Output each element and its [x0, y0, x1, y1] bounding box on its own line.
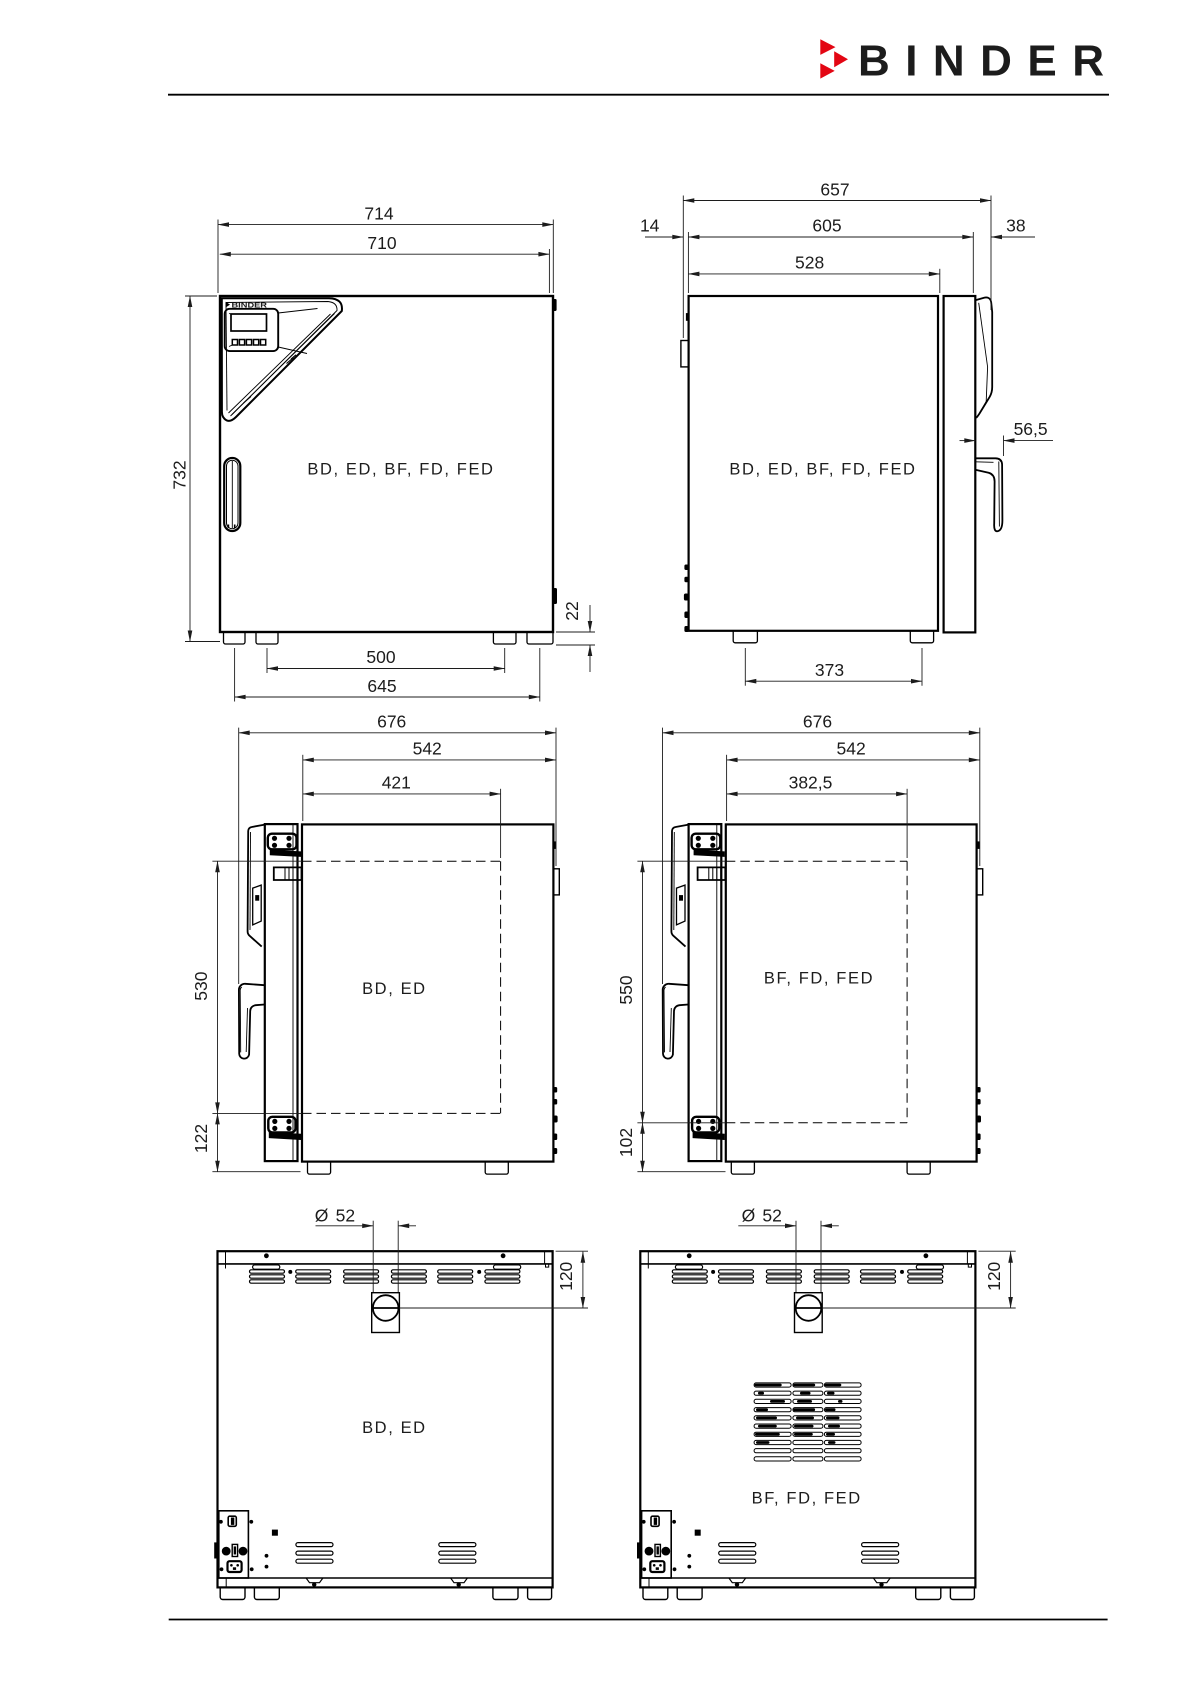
svg-text:500: 500 — [366, 647, 395, 667]
svg-text:14: 14 — [640, 216, 660, 236]
svg-text:676: 676 — [377, 711, 406, 731]
svg-text:22: 22 — [562, 601, 582, 620]
svg-text:38: 38 — [1006, 216, 1025, 236]
svg-text:710: 710 — [367, 233, 396, 253]
svg-text:421: 421 — [382, 773, 411, 793]
svg-text:550: 550 — [616, 975, 636, 1004]
svg-text:528: 528 — [795, 253, 824, 273]
svg-text:542: 542 — [836, 739, 865, 759]
svg-text:Ø52: Ø52 — [315, 1206, 355, 1226]
svg-text:530: 530 — [191, 971, 211, 1000]
svg-text:382,5: 382,5 — [789, 773, 833, 793]
svg-text:122: 122 — [191, 1124, 211, 1153]
svg-text:BD, ED, BF, FD, FED: BD, ED, BF, FD, FED — [729, 461, 916, 479]
svg-text:BF, FD, FED: BF, FD, FED — [752, 1490, 862, 1508]
svg-text:676: 676 — [803, 711, 832, 731]
svg-text:BD, ED, BF, FD, FED: BD, ED, BF, FD, FED — [307, 461, 494, 479]
svg-text:120: 120 — [556, 1261, 576, 1290]
svg-text:605: 605 — [812, 216, 841, 236]
svg-text:Ø52: Ø52 — [742, 1206, 782, 1226]
svg-text:542: 542 — [413, 739, 442, 759]
svg-text:BF, FD, FED: BF, FD, FED — [764, 970, 874, 988]
svg-text:120: 120 — [984, 1261, 1004, 1290]
svg-text:714: 714 — [364, 204, 393, 224]
svg-text:BINDER: BINDER — [232, 301, 268, 310]
svg-text:373: 373 — [815, 660, 844, 680]
svg-text:56,5: 56,5 — [1014, 419, 1048, 439]
svg-text:657: 657 — [820, 180, 849, 200]
svg-text:732: 732 — [170, 460, 190, 489]
svg-text:102: 102 — [616, 1128, 636, 1157]
svg-text:BD, ED: BD, ED — [362, 1419, 427, 1437]
svg-text:BD, ED: BD, ED — [362, 980, 427, 998]
svg-text:645: 645 — [367, 676, 396, 696]
svg-text:BINDER: BINDER — [858, 37, 1104, 86]
